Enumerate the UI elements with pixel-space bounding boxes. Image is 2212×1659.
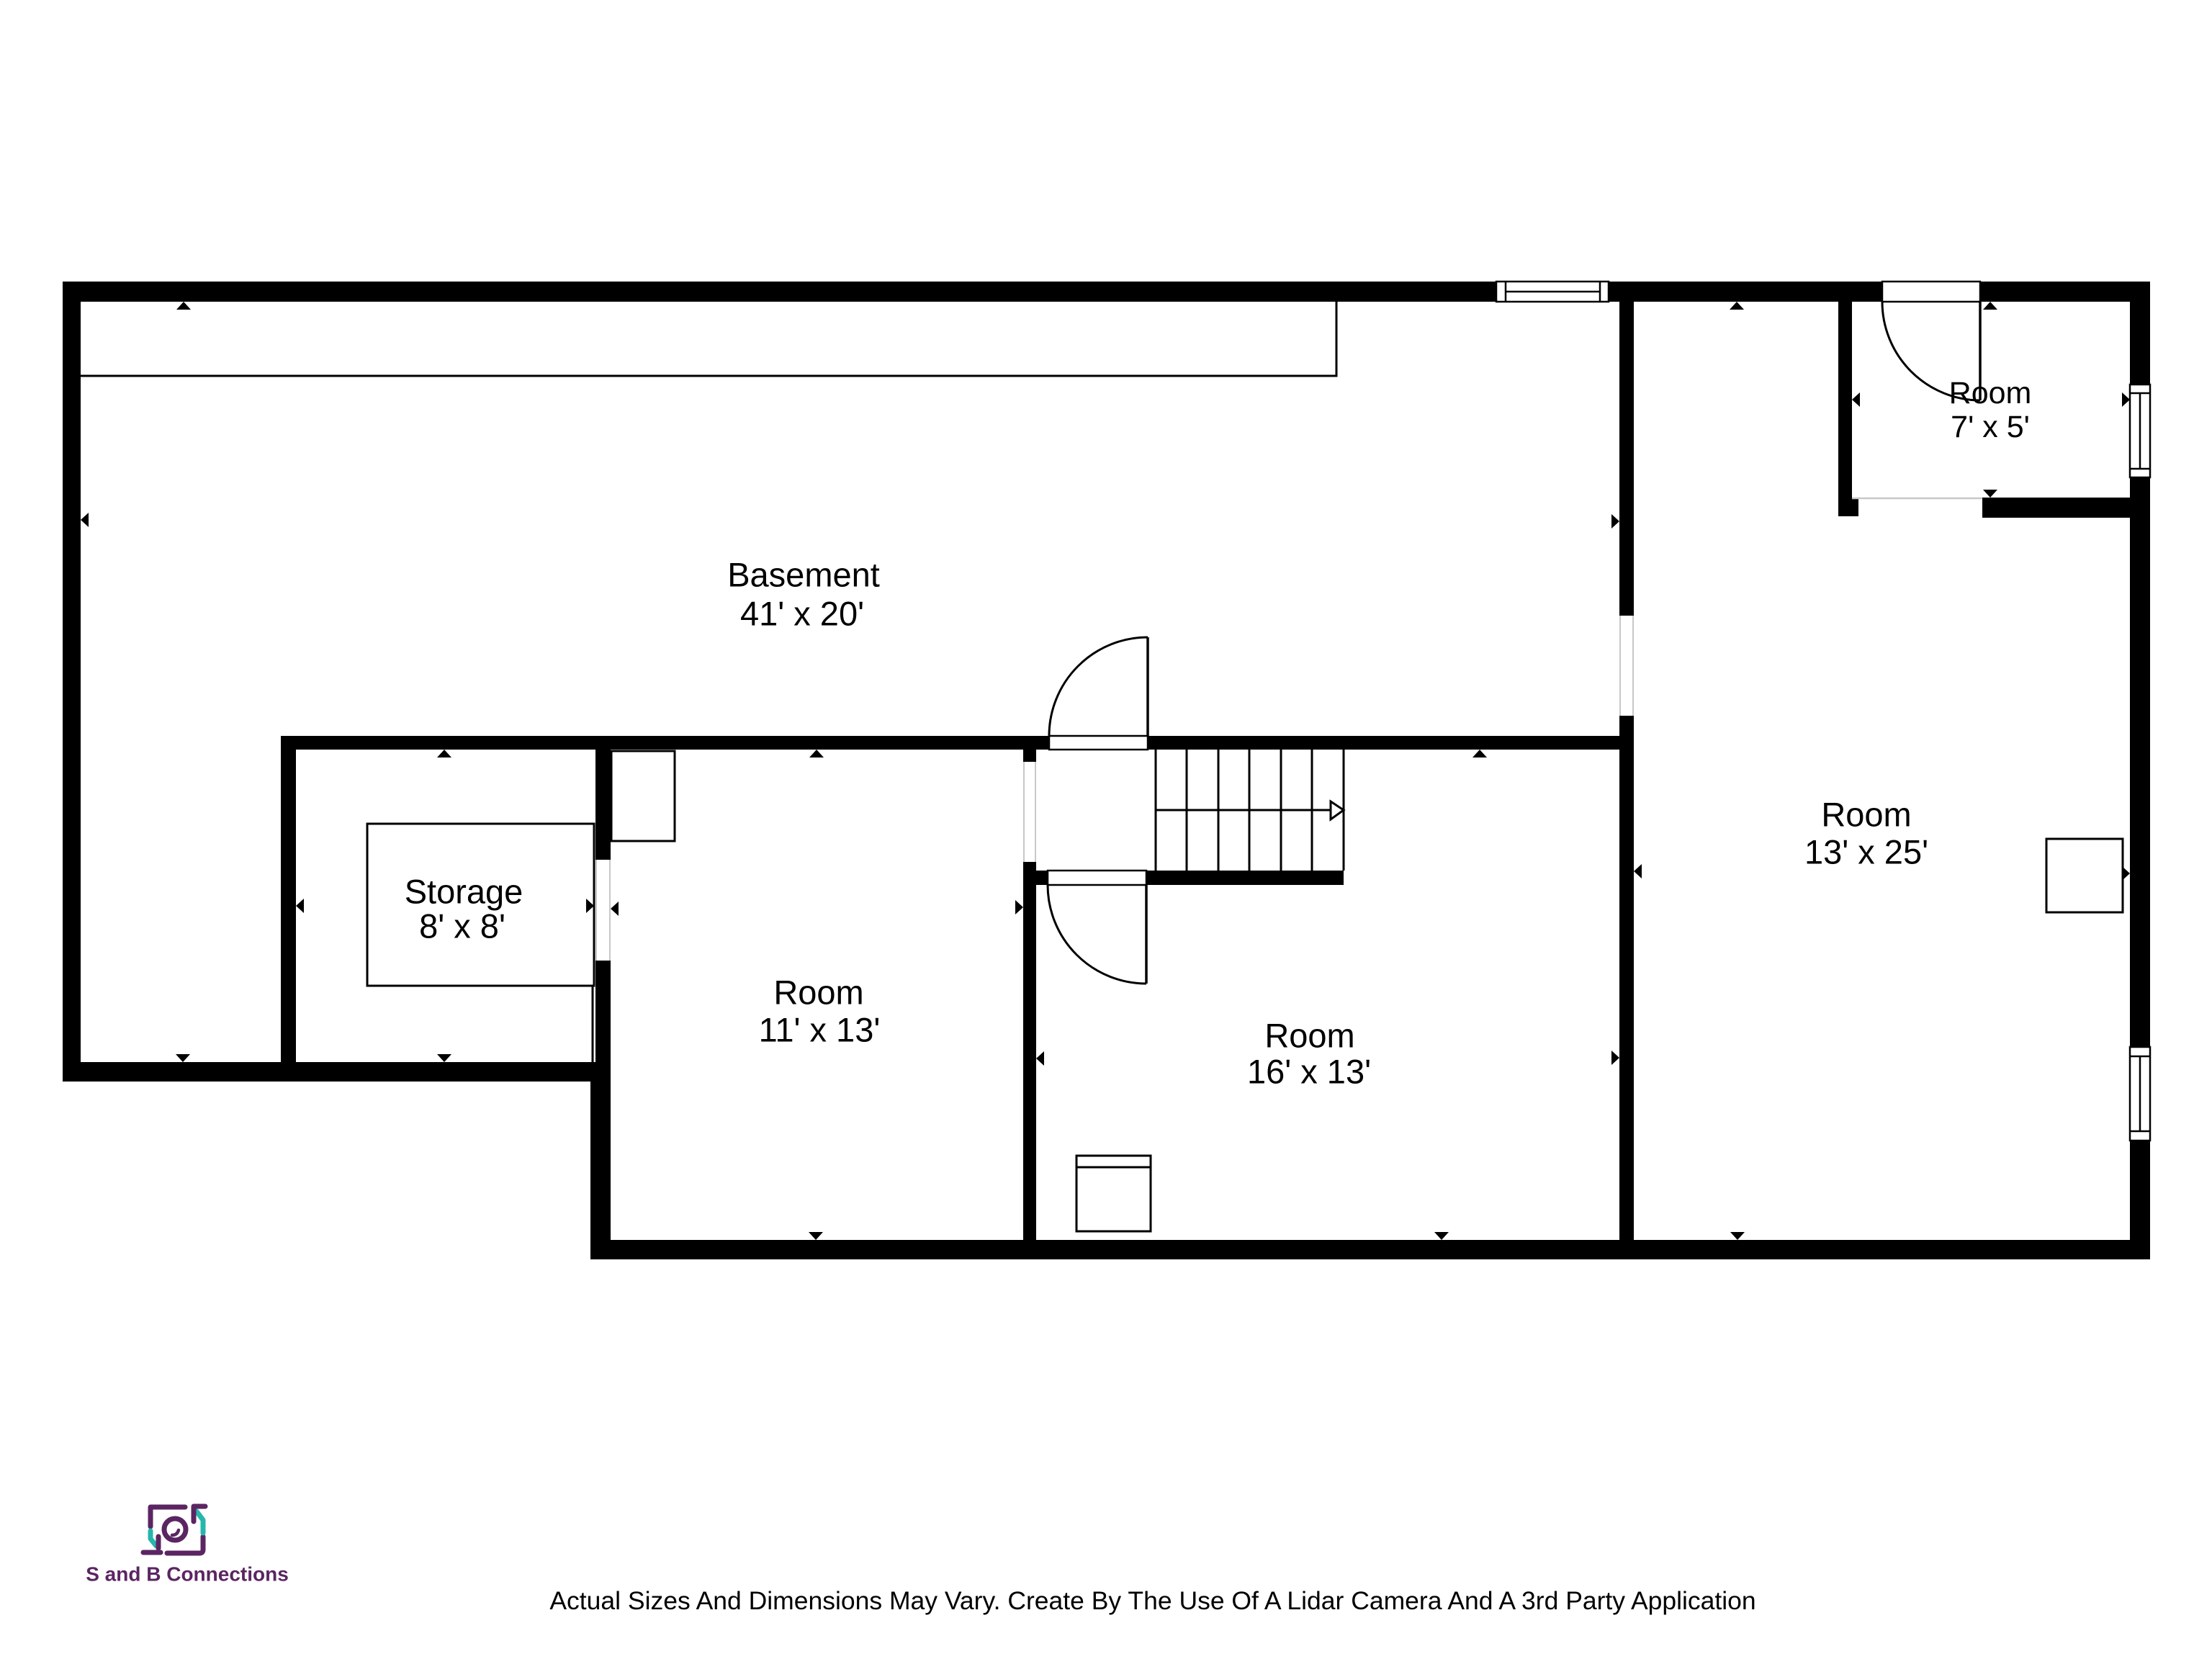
- svg-text:Room: Room: [773, 974, 863, 1012]
- svg-text:7' x 5': 7' x 5': [1951, 410, 2030, 444]
- svg-text:Basement: Basement: [727, 556, 880, 594]
- svg-text:13' x 25': 13' x 25': [1804, 833, 1928, 871]
- svg-text:8' x 8': 8' x 8': [419, 907, 505, 945]
- svg-text:16' x 13': 16' x 13': [1247, 1053, 1371, 1091]
- svg-text:11' x 13': 11' x 13': [759, 1011, 881, 1049]
- svg-text:Room: Room: [1821, 796, 1911, 834]
- svg-text:Room: Room: [1264, 1017, 1354, 1055]
- svg-text:Room: Room: [1949, 376, 2032, 410]
- svg-text:Storage: Storage: [405, 873, 523, 911]
- svg-text:S and B Connections: S and B Connections: [86, 1563, 289, 1586]
- svg-text:41' x 20': 41' x 20': [740, 595, 864, 633]
- svg-text:Actual Sizes And Dimensions Ma: Actual Sizes And Dimensions May Vary. Cr…: [549, 1586, 1755, 1615]
